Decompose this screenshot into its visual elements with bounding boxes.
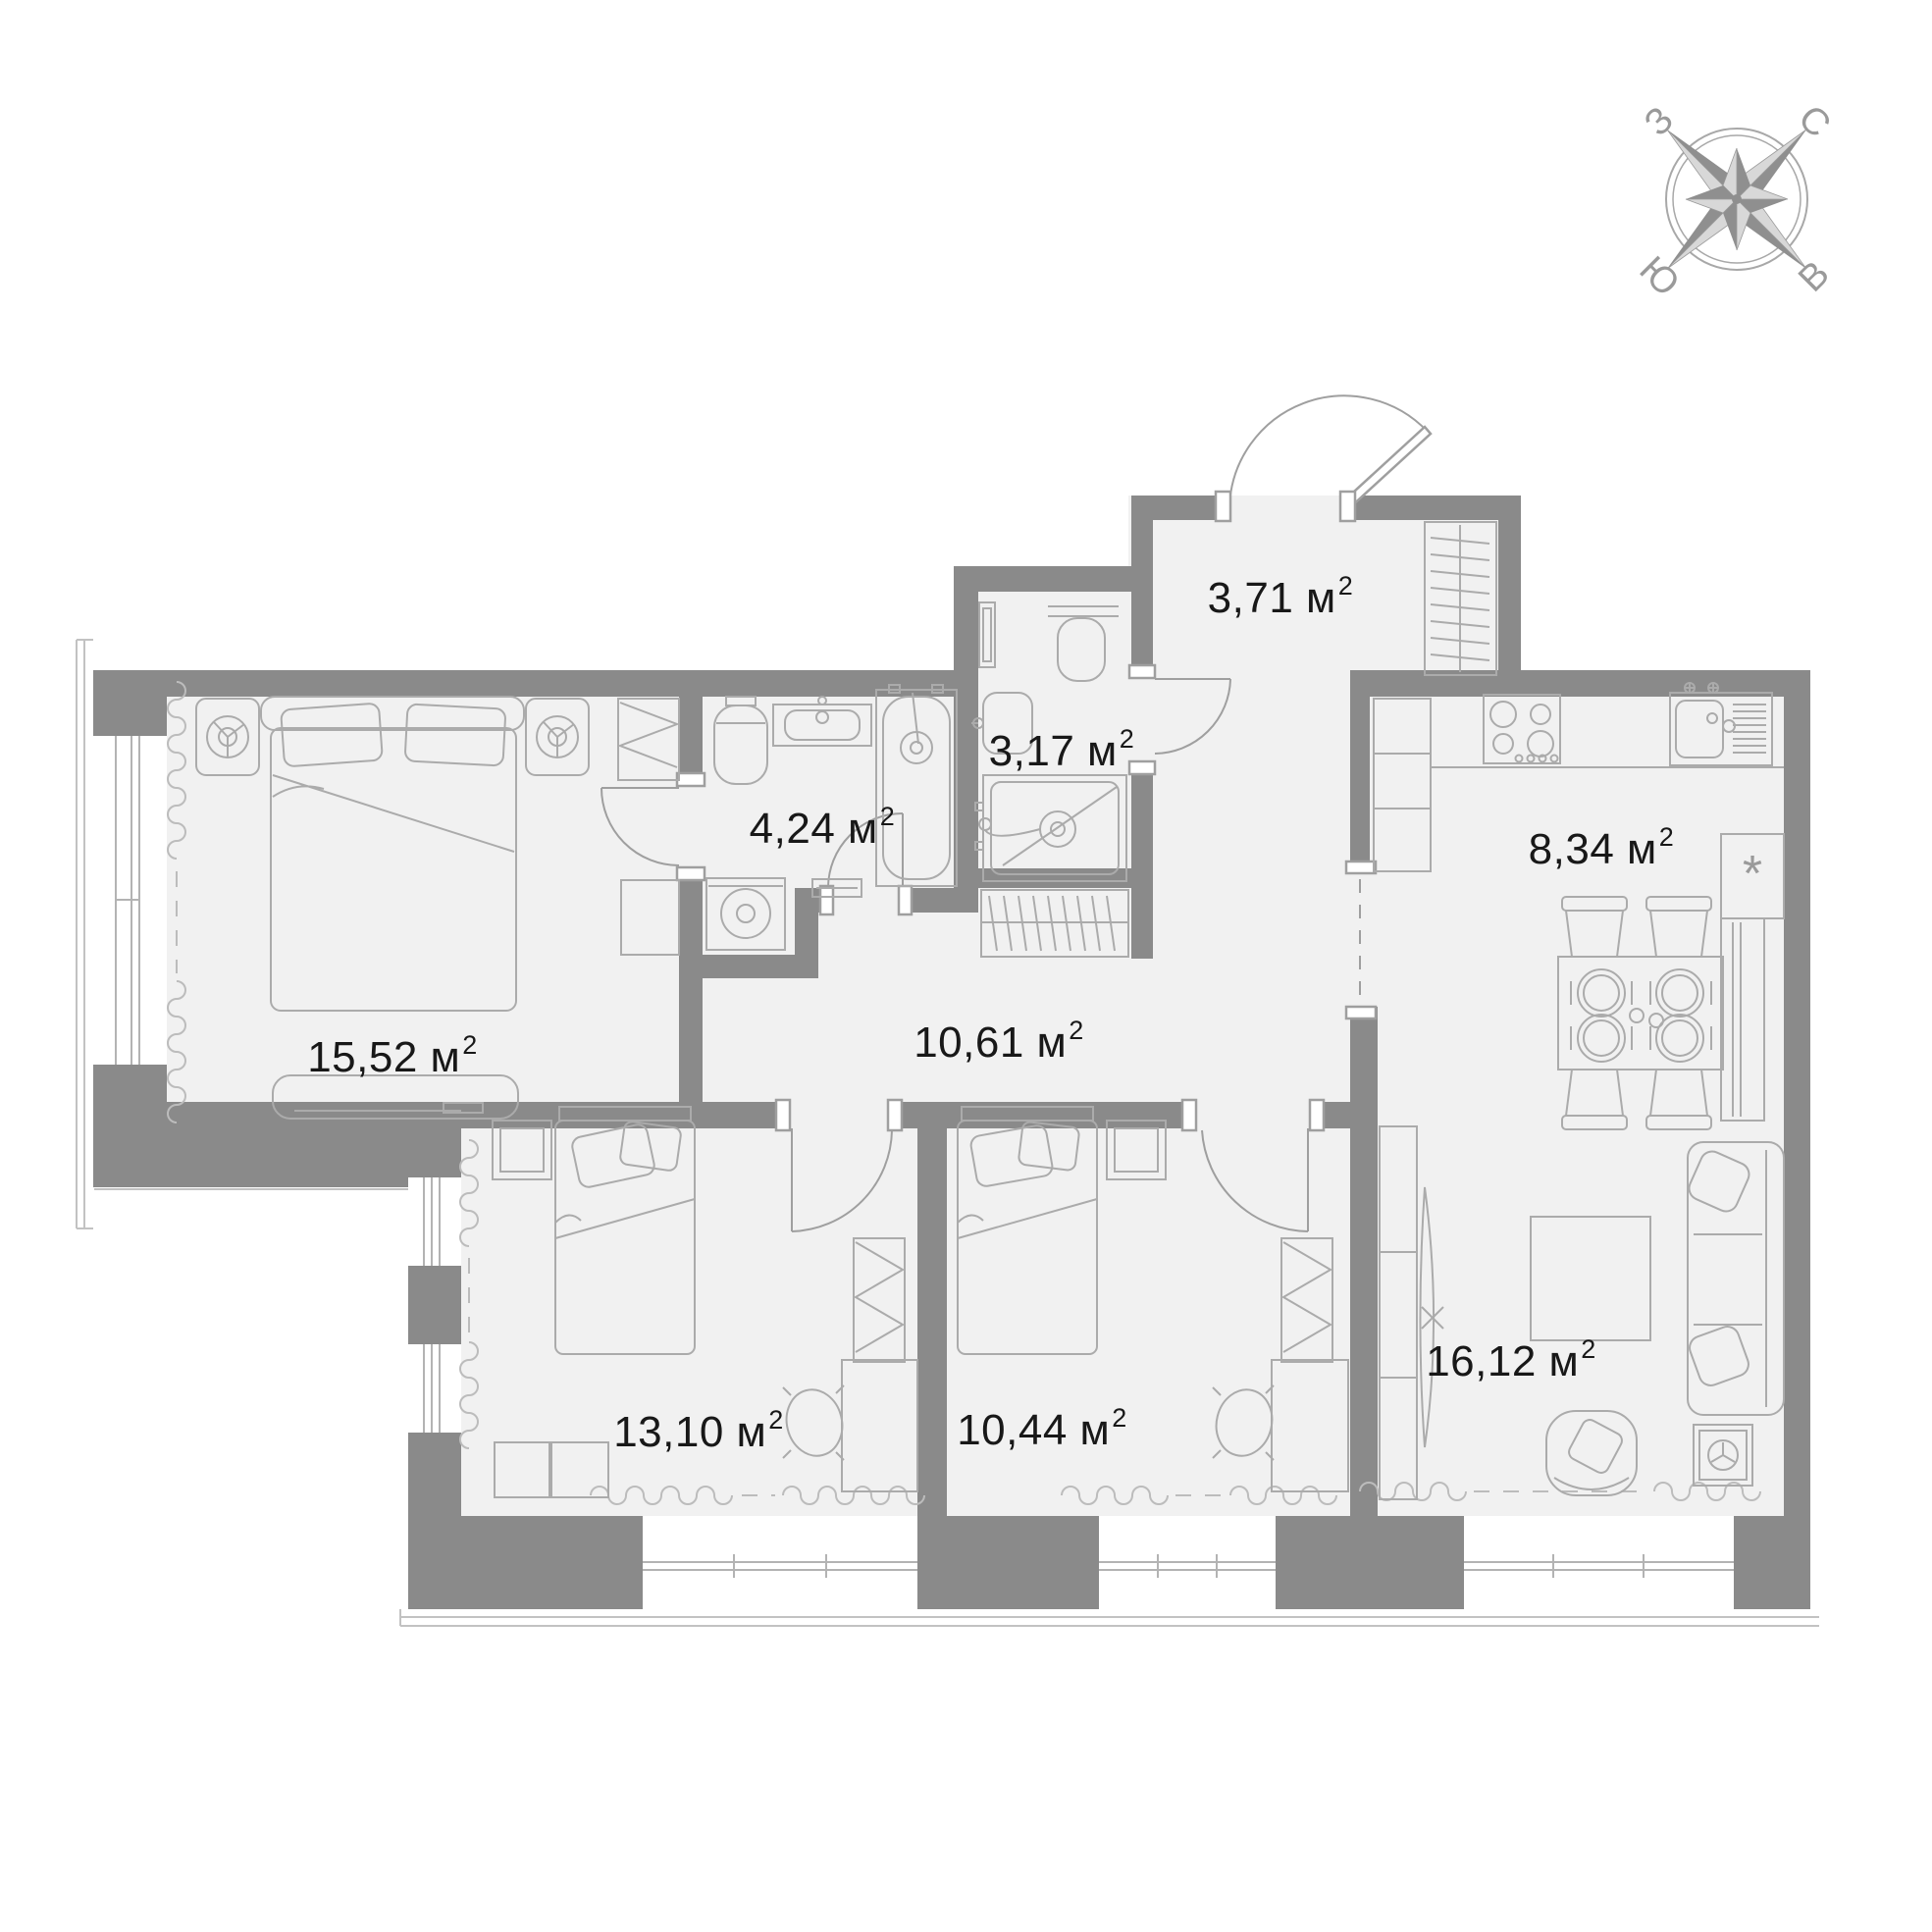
boiler-marker: *	[1743, 846, 1762, 903]
floor-plan-drawing: * С З Ю В	[0, 0, 1932, 1932]
window-bedroom-main	[93, 736, 167, 1065]
room-label-shower-room: 3,17 м2	[989, 727, 1135, 776]
room-label-bedroom-2: 13,10 м2	[613, 1408, 784, 1457]
window-living-room-bottom	[1464, 1516, 1734, 1609]
window-bedroom-2-left-upper	[408, 1177, 461, 1266]
room-label-kitchen: 8,34 м2	[1529, 825, 1675, 874]
room-label-living-room: 16,12 м2	[1426, 1337, 1596, 1386]
room-label-bedroom-main: 15,52 м2	[307, 1033, 478, 1082]
window-bedroom-2-left-lower	[408, 1344, 461, 1433]
room-label-bedroom-3: 10,44 м2	[957, 1406, 1127, 1455]
room-label-bathroom: 4,24 м2	[750, 805, 896, 854]
window-bedroom-2-bottom	[643, 1516, 917, 1609]
room-label-hallway: 10,61 м2	[914, 1018, 1084, 1068]
window-bedroom-3-bottom	[1099, 1516, 1276, 1609]
floor-plan-page: * С З Ю В 15,52 м2 4,24 м2 3,17 м2 3,7	[0, 0, 1932, 1932]
compass-rose: С З Ю В	[1632, 97, 1839, 304]
room-label-entrance-hall: 3,71 м2	[1208, 574, 1354, 623]
